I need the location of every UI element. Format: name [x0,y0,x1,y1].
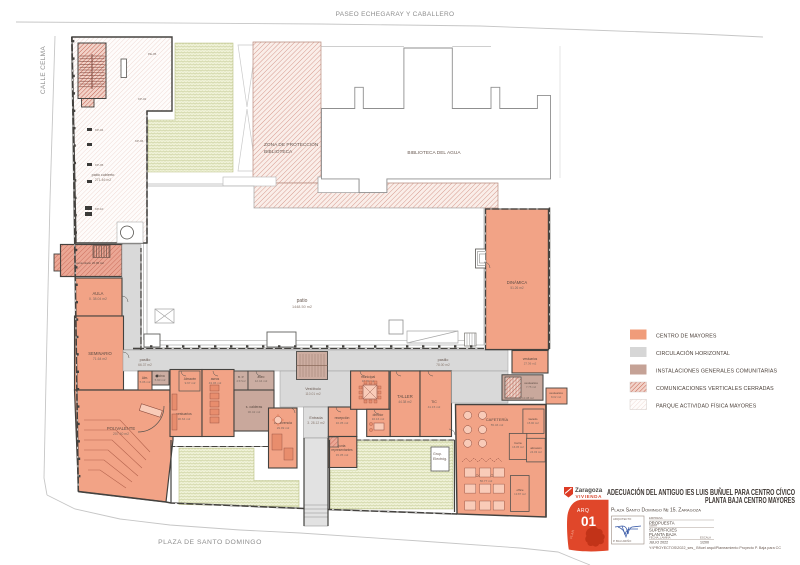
svg-text:8.02 m2: 8.02 m2 [551,395,562,399]
svg-text:KP-02: KP-02 [138,97,147,101]
svg-text:patio cubierto: patio cubierto [92,173,115,177]
svg-text:110.01 m2: 110.01 m2 [305,392,321,396]
svg-text:Entrada: Entrada [309,416,323,420]
svg-text:01: 01 [581,514,597,529]
svg-text:5.60 m2: 5.60 m2 [155,378,166,382]
svg-text:30.42 m2: 30.42 m2 [248,410,261,414]
svg-text:66.37 m2: 66.37 m2 [138,363,152,367]
svg-text:patio: patio [297,298,308,304]
svg-text:pasillo: pasillo [140,358,151,362]
svg-text:Electróg.: Electróg. [433,457,447,461]
svg-text:recepción: recepción [335,416,350,420]
svg-text:30.64 m2: 30.64 m2 [178,417,191,421]
svg-text:ZONA DE PROTECCIÓN: ZONA DE PROTECCIÓN [264,141,319,148]
svg-text:271.46 m2: 271.46 m2 [95,178,112,182]
svg-text:TALLER: TALLER [397,394,413,399]
svg-text:41.15 m2: 41.15 m2 [428,405,441,409]
svg-text:PASEO ECHEGARAY Y CABALLERO: PASEO ECHEGARAY Y CABALLERO [336,11,455,18]
svg-text:44.38 m2: 44.38 m2 [398,400,412,404]
svg-text:PLAZA DE SANTO DOMINGO: PLAZA DE SANTO DOMINGO [158,539,262,546]
svg-text:3. 28.12 m2: 3. 28.12 m2 [307,421,325,425]
svg-text:9.67 m2: 9.67 m2 [185,381,196,385]
svg-text:16.35 m2: 16.35 m2 [336,421,349,425]
svg-text:KP-04: KP-04 [95,128,104,132]
svg-text:7.75 m2: 7.75 m2 [526,385,537,389]
svg-text:PARQUE ACTIVIDAD FÍSICA MAYORE: PARQUE ACTIVIDAD FÍSICA MAYORES [656,403,757,410]
svg-text:VIVIENDA: VIVIENDA [576,494,603,499]
svg-text:CIRCULACIÓN HORIZONTAL: CIRCULACIÓN HORIZONTAL [656,350,730,357]
svg-text:16.05 m2: 16.05 m2 [512,445,524,449]
svg-text:AULA: AULA [93,291,104,296]
svg-text:BIBLIOTECA: BIBLIOTECA [264,149,293,155]
svg-text:43.06 m2: 43.06 m2 [209,381,222,385]
svg-text:15.90 m2: 15.90 m2 [527,421,539,425]
svg-text:5.06 m2: 5.06 m2 [140,380,151,384]
svg-text:13.87 m2: 13.87 m2 [514,492,526,496]
svg-text:4.57m2: 4.57m2 [236,379,246,383]
svg-text:CALLE CELMA: CALLE CELMA [40,46,47,94]
svg-text:16.16 m2: 16.16 m2 [372,417,385,421]
svg-text:55.46 m2: 55.46 m2 [491,423,504,427]
svg-text:56.77 m2: 56.77 m2 [480,479,493,483]
svg-text:JULIO 2022: JULIO 2022 [649,541,668,545]
svg-text:INSTALACIONES GENERALES COMUNI: INSTALACIONES GENERALES COMUNITARIAS [656,369,778,375]
svg-text:Y:\PROYECTOS\2022_ses_ Bñuel a: Y:\PROYECTOS\2022_ses_ Bñuel arqui\Plane… [649,546,782,550]
svg-text:SEMINARIO: SEMINARIO [88,351,112,356]
svg-text:78.00 m2: 78.00 m2 [436,363,450,367]
svg-text:TIC: TIC [431,400,437,404]
svg-text:P. BAU ARIÑO: P. BAU ARIÑO [613,538,632,543]
svg-text:1448.50 m2: 1448.50 m2 [292,305,312,309]
svg-text:BIBLIOTECA DEL AGUA: BIBLIOTECA DEL AGUA [407,150,461,156]
svg-text:PLANTA BAJA CENTRO MAYORES: PLANTA BAJA CENTRO MAYORES [705,496,795,505]
svg-text:1/200: 1/200 [700,541,709,545]
svg-text:27.36 m2: 27.36 m2 [524,362,537,366]
svg-text:FECHA_LAMINA: FECHA_LAMINA [649,536,671,540]
svg-text:Grup.: Grup. [433,452,442,456]
svg-text:representantes: representantes [331,448,353,452]
svg-text:PE-05: PE-05 [148,52,157,56]
svg-text:Zaragoza: Zaragoza [575,487,603,494]
svg-text:Vestíbulo: Vestíbulo [305,387,321,391]
svg-text:15.35 m2: 15.35 m2 [336,453,349,457]
svg-text:0. 38.04 m2: 0. 38.04 m2 [89,297,107,301]
svg-text:comunitario 26.05 m2: comunitario 26.05 m2 [76,261,104,265]
svg-text:10.38 m2: 10.38 m2 [522,396,534,400]
svg-text:CENTRO DE MAYORES: CENTRO DE MAYORES [656,334,717,340]
svg-text:CAFETERÍA: CAFETERÍA [486,417,509,422]
svg-text:s. calderas: s. calderas [246,405,263,409]
svg-text:EMPRESA: EMPRESA [649,516,663,520]
svg-text:KP-10: KP-10 [95,207,104,211]
svg-text:ARQUITECTO: ARQUITECTO [613,517,632,521]
svg-text:16.20 m2: 16.20 m2 [362,379,375,383]
svg-text:KP-06: KP-06 [135,139,144,143]
svg-text:DINÁMICA: DINÁMICA [507,280,528,285]
svg-text:24.03 m2: 24.03 m2 [530,450,542,454]
svg-text:12.44 m2: 12.44 m2 [255,379,268,383]
svg-text:ESCALA: ESCALA [700,536,711,540]
svg-text:COMUNICACIONES VERTICALES CERR: COMUNICACIONES VERTICALES CERRADAS [656,386,774,392]
svg-text:71.64 m2: 71.64 m2 [93,357,107,361]
svg-text:KP-05: KP-05 [95,163,104,167]
svg-text:vestuarios: vestuarios [176,412,192,416]
svg-text:29.99 m2: 29.99 m2 [277,426,290,430]
svg-text:vestuarios: vestuarios [523,357,538,361]
svg-text:pasillo: pasillo [438,358,449,362]
svg-text:51.26 m2: 51.26 m2 [510,286,524,290]
